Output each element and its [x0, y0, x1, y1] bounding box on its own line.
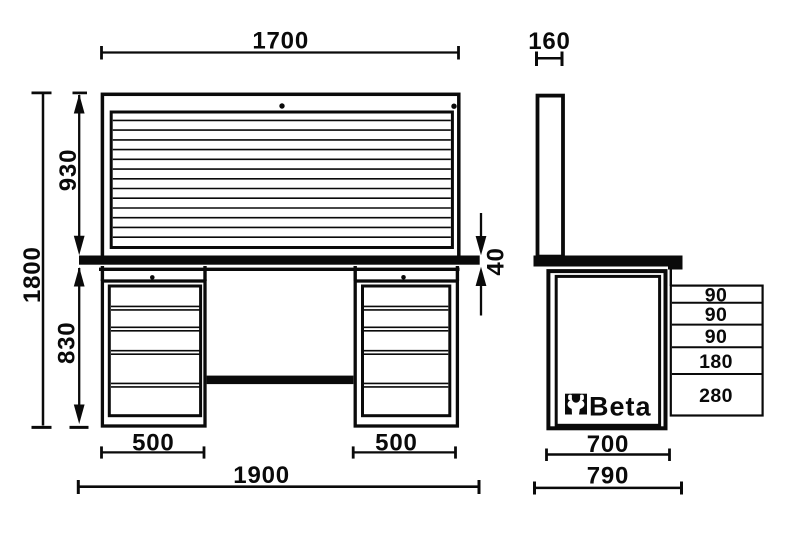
svg-text:930: 930 [55, 149, 82, 191]
svg-text:40: 40 [482, 247, 509, 275]
svg-text:830: 830 [54, 322, 81, 364]
svg-text:160: 160 [528, 28, 570, 55]
svg-text:1700: 1700 [252, 27, 309, 54]
svg-text:1900: 1900 [233, 462, 290, 489]
svg-text:500: 500 [132, 429, 174, 456]
svg-text:790: 790 [587, 462, 629, 489]
svg-text:90: 90 [705, 304, 728, 326]
svg-text:280: 280 [699, 385, 733, 407]
svg-text:500: 500 [375, 429, 417, 456]
svg-text:700: 700 [587, 431, 629, 458]
svg-text:90: 90 [705, 326, 728, 348]
svg-text:180: 180 [699, 351, 733, 373]
svg-text:1800: 1800 [19, 246, 46, 303]
svg-text:Beta: Beta [589, 391, 652, 421]
